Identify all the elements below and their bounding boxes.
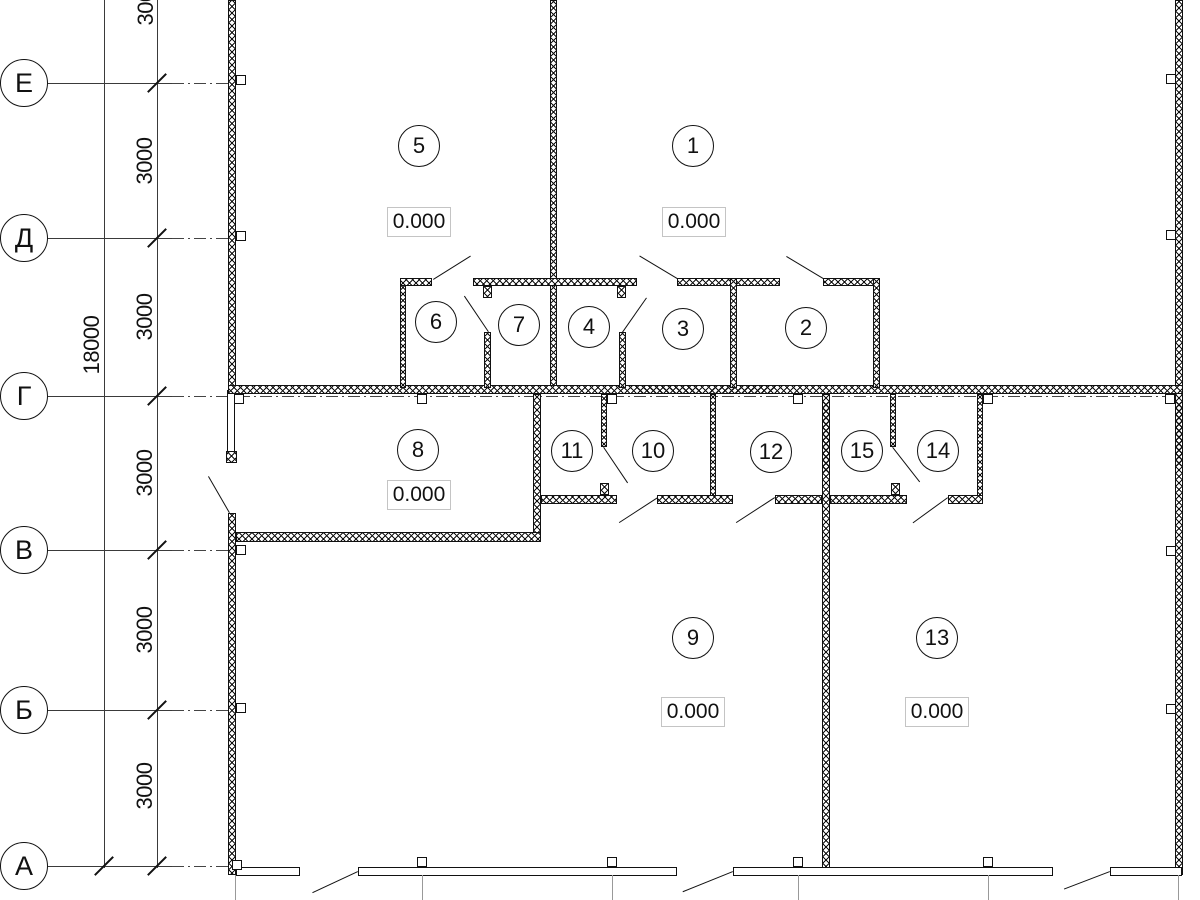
axis-bubble-v: В [0, 526, 48, 574]
wall-room8-bottom [236, 532, 541, 542]
axis-label: Г [17, 381, 32, 412]
door-leaf-facade-2 [683, 871, 733, 892]
dim-text-3000: 3000 [132, 294, 158, 341]
door-leaf-room2 [786, 256, 823, 279]
axis-line-e-dashdot [172, 83, 228, 84]
elevation-mark-room8: 0.000 [387, 480, 451, 510]
extension-line [235, 875, 236, 900]
elevation-value: 0.000 [393, 483, 446, 507]
wall-band2-bottom-14 [948, 495, 983, 504]
room-bubble-13: 13 [916, 617, 958, 659]
dim-text-18000: 18000 [79, 316, 105, 375]
door-leaf-4-3 [622, 298, 647, 333]
door-leaf-room12 [736, 497, 775, 523]
dim-text-3000: 3000 [132, 763, 158, 810]
room-number: 14 [926, 438, 950, 464]
axis-marker [417, 394, 427, 404]
wall-pier-cap [226, 451, 237, 463]
window-sill-1 [236, 867, 300, 876]
axis-marker [983, 394, 993, 404]
wall-partial-15-14 [890, 394, 896, 447]
room-number: 5 [413, 133, 425, 159]
door-leaf-room6 [433, 256, 471, 280]
room-bubble-12: 12 [750, 431, 792, 473]
room-bubble-11: 11 [551, 430, 593, 472]
room-bubble-1: 1 [672, 125, 714, 167]
wall-band2-bottom-12 [775, 495, 822, 504]
extension-line [612, 875, 613, 900]
axis-marker [236, 75, 246, 85]
axis-line-v-dashdot [172, 550, 228, 551]
dimension-line-overall [104, 0, 105, 868]
door-leaf-room8-entry [208, 476, 230, 513]
dimension-line-bays [157, 0, 158, 868]
axis-line-g-dashdot [172, 396, 1183, 397]
axis-line-a-dashdot [172, 866, 228, 867]
elevation-mark-room1: 0.000 [662, 207, 726, 237]
room-number: 9 [687, 625, 699, 651]
dim-text-3000: 3000 [132, 138, 158, 185]
room-bubble-8: 8 [397, 429, 439, 471]
room-bubble-9: 9 [672, 617, 714, 659]
room-bubble-7: 7 [498, 304, 540, 346]
door-leaf-room3 [639, 255, 677, 279]
axis-marker [236, 231, 246, 241]
elevation-value: 0.000 [911, 700, 964, 724]
axis-line-b-dashdot [172, 710, 228, 711]
axis-bubble-a: А [0, 842, 48, 890]
dim-text-3000: 3000 [132, 450, 158, 497]
room-number: 11 [561, 438, 584, 464]
axis-marker [983, 857, 993, 867]
axis-label: Е [15, 68, 33, 99]
axis-marker [607, 394, 617, 404]
room-bubble-4: 4 [568, 306, 610, 348]
door-leaf-11-10 [603, 447, 628, 483]
axis-marker [1166, 230, 1176, 240]
wall-band1-top-a [400, 278, 432, 286]
axis-label: В [15, 535, 33, 566]
elevation-value: 0.000 [667, 700, 720, 724]
extension-line [988, 875, 989, 900]
wall-band1-top-c [677, 278, 780, 286]
room-bubble-14: 14 [917, 430, 959, 472]
axis-marker [236, 545, 246, 555]
dim-text-3000-top-cut: 3000 [133, 0, 159, 25]
dim-text-3000: 3000 [132, 607, 158, 654]
wall-band2-bottom-10 [657, 495, 733, 504]
wall-main-vertical [550, 0, 557, 394]
elevation-mark-room5: 0.000 [387, 207, 451, 237]
elevation-value: 0.000 [668, 210, 721, 234]
room-number: 7 [513, 312, 525, 338]
extension-line [1178, 875, 1179, 900]
door-leaf-room14 [913, 497, 948, 523]
axis-marker [793, 857, 803, 867]
axis-bubble-b: Б [0, 686, 48, 734]
door-jamb-4-3 [617, 286, 626, 298]
room-bubble-10: 10 [632, 430, 674, 472]
room-number: 13 [925, 625, 949, 651]
elevation-mark-room9: 0.000 [661, 697, 725, 727]
window-sill-2 [358, 867, 677, 876]
wall-exterior-left-lower [228, 513, 236, 875]
axis-label: А [15, 851, 33, 882]
axis-bubble-e: Е [0, 59, 48, 107]
axis-marker [234, 394, 244, 404]
room-number: 6 [430, 309, 442, 335]
wall-partial-4-3 [619, 332, 626, 388]
wall-divider-9-13 [822, 394, 830, 875]
wall-band1-top-d [823, 278, 879, 286]
door-jamb-11-10 [600, 483, 609, 495]
room-number: 15 [850, 438, 874, 464]
axis-label: Д [15, 223, 33, 254]
room-number: 1 [687, 133, 699, 159]
wall-3-2 [730, 278, 737, 388]
room-number: 4 [583, 314, 595, 340]
door-leaf-facade-3 [1064, 871, 1110, 889]
room-bubble-15: 15 [841, 430, 883, 472]
door-jamb-6-7 [483, 286, 492, 298]
axis-label: Б [15, 695, 33, 726]
room-bubble-2: 2 [785, 307, 827, 349]
axis-bubble-d: Д [0, 214, 48, 262]
door-leaf-15-14 [892, 447, 920, 482]
axis-marker [1166, 74, 1176, 84]
room-number: 3 [677, 316, 689, 342]
window-sill-3 [733, 867, 1053, 876]
door-jamb-15-14 [891, 483, 900, 495]
axis-line-d-dashdot [172, 238, 228, 239]
wall-room2-right [873, 278, 880, 388]
door-leaf-facade-1 [312, 871, 358, 893]
wall-band2-bottom-11 [541, 495, 617, 504]
wall-axis-g [228, 385, 1183, 394]
room-bubble-5: 5 [398, 125, 440, 167]
axis-marker [1166, 546, 1176, 556]
axis-marker [1166, 704, 1176, 714]
floor-plan-canvas: Е Д Г В Б А 3000 3000 3000 3000 3000 300… [0, 0, 1200, 900]
room-bubble-3: 3 [662, 308, 704, 350]
room-number: 2 [800, 315, 812, 341]
wall-room14-right [977, 394, 983, 504]
room-number: 12 [759, 439, 783, 465]
door-leaf-room10 [619, 497, 658, 523]
door-leaf-6-7 [464, 296, 489, 332]
axis-marker [793, 394, 803, 404]
room-bubble-6: 6 [415, 301, 457, 343]
axis-marker [607, 857, 617, 867]
elevation-value: 0.000 [393, 210, 446, 234]
extension-line [422, 875, 423, 900]
window-sill-4 [1110, 867, 1182, 876]
wall-partial-6-7 [484, 332, 491, 388]
axis-marker [236, 703, 246, 713]
axis-bubble-g: Г [0, 372, 48, 420]
axis-marker [417, 857, 427, 867]
wall-10-12 [710, 394, 716, 504]
room-number: 8 [412, 437, 424, 463]
wall-band1-top-b [473, 278, 637, 286]
wall-room6-left [400, 278, 406, 388]
room-number: 10 [641, 438, 665, 464]
axis-marker [232, 860, 242, 870]
elevation-mark-room13: 0.000 [905, 697, 969, 727]
wall-band2-bottom-15 [830, 495, 907, 504]
axis-marker [1165, 394, 1175, 404]
extension-line [798, 875, 799, 900]
wall-room11-left [533, 394, 541, 542]
wall-exterior-left-upper [228, 0, 236, 392]
wall-exterior-right [1175, 0, 1183, 875]
